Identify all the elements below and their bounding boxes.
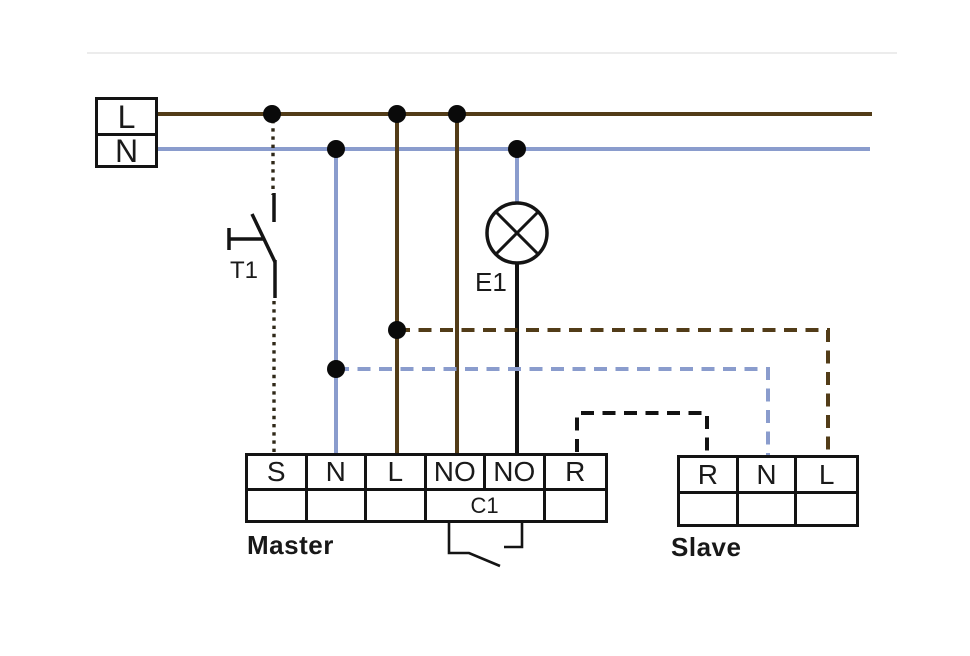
wiring-diagram: L N T1 E1 S N L NO NO R C1 Master R N L … — [0, 0, 970, 656]
master-empty-cell — [546, 488, 606, 520]
junction-dot — [448, 105, 466, 123]
lamp-icon — [487, 203, 547, 263]
junction-dot — [327, 360, 345, 378]
master-terminal-n: N — [308, 456, 368, 488]
junction-dot — [388, 321, 406, 339]
master-terminal-s: S — [248, 456, 308, 488]
master-relay-cell: C1 — [427, 488, 546, 520]
supply-terminal-n: N — [98, 133, 155, 165]
supply-terminal-box: L N — [95, 97, 158, 168]
master-empty-cell — [367, 488, 427, 520]
wire-dashed-r-to-slave — [577, 413, 707, 455]
wire-dashed-l-to-slave — [397, 330, 828, 455]
junction-dot — [327, 140, 345, 158]
junction-dot — [388, 105, 406, 123]
slave-empty-cell — [797, 491, 856, 524]
slave-empty-cell — [680, 491, 739, 524]
master-terminal-r: R — [546, 456, 606, 488]
slave-label: Slave — [671, 532, 741, 563]
junction-dot — [263, 105, 281, 123]
master-terminal-l: L — [367, 456, 427, 488]
slave-terminal-r: R — [680, 458, 739, 491]
master-terminal-block: S N L NO NO R C1 — [245, 453, 608, 523]
slave-terminal-block: R N L — [677, 455, 859, 527]
push-button-label: T1 — [230, 257, 258, 285]
slave-empty-cell — [739, 491, 798, 524]
slave-terminal-n: N — [739, 458, 798, 491]
master-empty-cell — [308, 488, 368, 520]
wire-dashed-n-to-slave — [336, 369, 768, 455]
relay-contact-icon — [449, 523, 522, 566]
master-empty-cell — [248, 488, 308, 520]
junction-dot — [508, 140, 526, 158]
master-label: Master — [247, 530, 334, 561]
slave-terminal-l: L — [797, 458, 856, 491]
master-terminal-no1: NO — [427, 456, 487, 488]
lamp-label: E1 — [475, 267, 507, 298]
master-terminal-no2: NO — [486, 456, 546, 488]
supply-terminal-l: L — [98, 100, 155, 133]
